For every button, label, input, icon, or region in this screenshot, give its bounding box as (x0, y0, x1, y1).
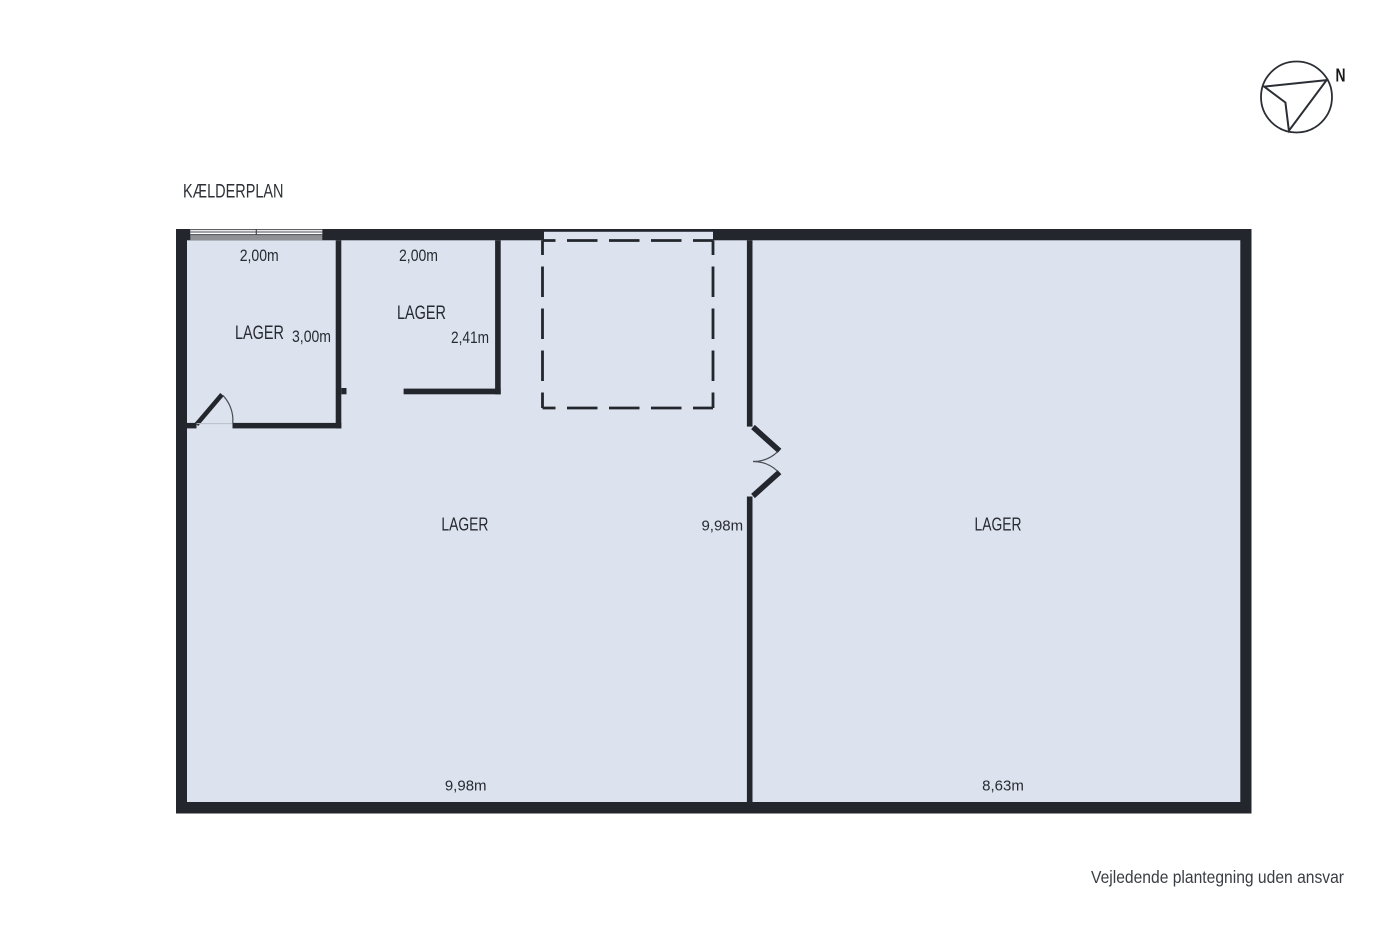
svg-text:2,41m: 2,41m (451, 329, 489, 347)
svg-text:3,00m: 3,00m (292, 328, 331, 346)
svg-text:LAGER: LAGER (397, 303, 446, 324)
svg-text:2,00m: 2,00m (399, 247, 438, 265)
svg-text:2,00m: 2,00m (240, 247, 279, 265)
svg-text:N: N (1336, 65, 1346, 85)
svg-text:9,98m: 9,98m (701, 517, 743, 534)
svg-text:Vejledende plantegning uden an: Vejledende plantegning uden ansvar (1091, 867, 1344, 887)
svg-text:8,63m: 8,63m (982, 778, 1024, 795)
svg-text:LAGER: LAGER (441, 513, 488, 534)
svg-text:LAGER: LAGER (235, 323, 284, 344)
svg-text:LAGER: LAGER (975, 513, 1022, 534)
svg-text:KÆLDERPLAN: KÆLDERPLAN (183, 181, 284, 202)
svg-text:9,98m: 9,98m (445, 778, 487, 795)
